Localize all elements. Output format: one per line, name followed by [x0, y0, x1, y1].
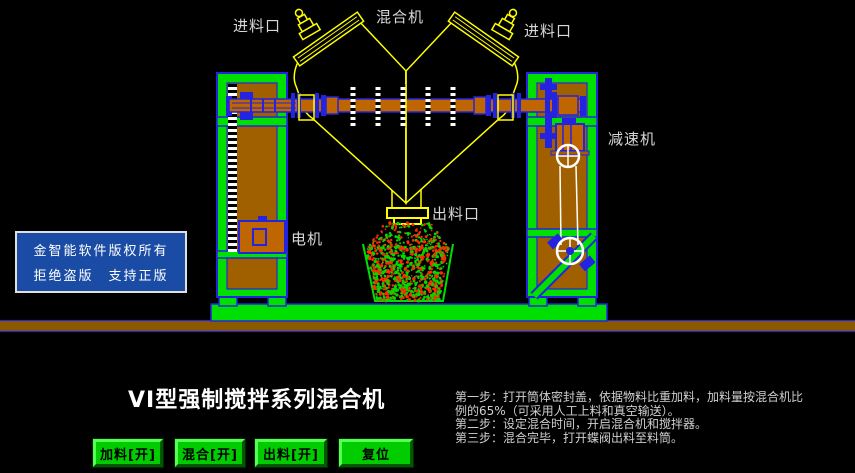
label-discharge-outlet: 出料口: [432, 203, 480, 224]
label-feed-inlet-right: 进料口: [524, 20, 572, 41]
page-title: VI型强制搅拌系列混合机: [128, 382, 385, 414]
copyright-line1: 金智能软件版权所有: [33, 240, 168, 259]
label-reducer: 减速机: [608, 128, 656, 149]
reset-button[interactable]: 复位: [339, 439, 413, 467]
instruction-line: 例的65%（可采用人工上料和真空输送）。: [455, 405, 853, 419]
mix-on-button[interactable]: 混合[开]: [175, 439, 245, 467]
instruction-line: 第二步：设定混合时间，开启混合机和搅拌器。: [455, 418, 853, 432]
instruction-line: 第三步：混合完毕，打开蝶阀出料至料筒。: [455, 432, 853, 446]
copyright-line2: 拒绝盗版 支持正版: [33, 265, 168, 284]
inlet-valve-icon: [289, 5, 321, 40]
reducer: [551, 118, 589, 155]
operation-instructions: 第一步：打开筒体密封盖，依据物料比重加料，加料量按混合机比 例的65%（可采用人…: [455, 391, 853, 445]
instruction-line: 第一步：打开筒体密封盖，依据物料比重加料，加料量按混合机比: [455, 391, 853, 405]
discharge-on-button[interactable]: 出料[开]: [255, 439, 327, 467]
copyright-notice: 金智能软件版权所有 拒绝盗版 支持正版: [15, 231, 187, 293]
feed-on-button[interactable]: 加料[开]: [93, 439, 163, 467]
ground: [0, 321, 855, 332]
label-feed-inlet-left: 进料口: [233, 15, 281, 36]
hmi-screen: 进料口 混合机 进料口 减速机 电机 出料口 金智能软件版权所有 拒绝盗版 支持…: [0, 0, 855, 473]
label-mixer: 混合机: [376, 6, 424, 27]
motor: [239, 216, 285, 253]
label-motor: 电机: [291, 228, 323, 249]
